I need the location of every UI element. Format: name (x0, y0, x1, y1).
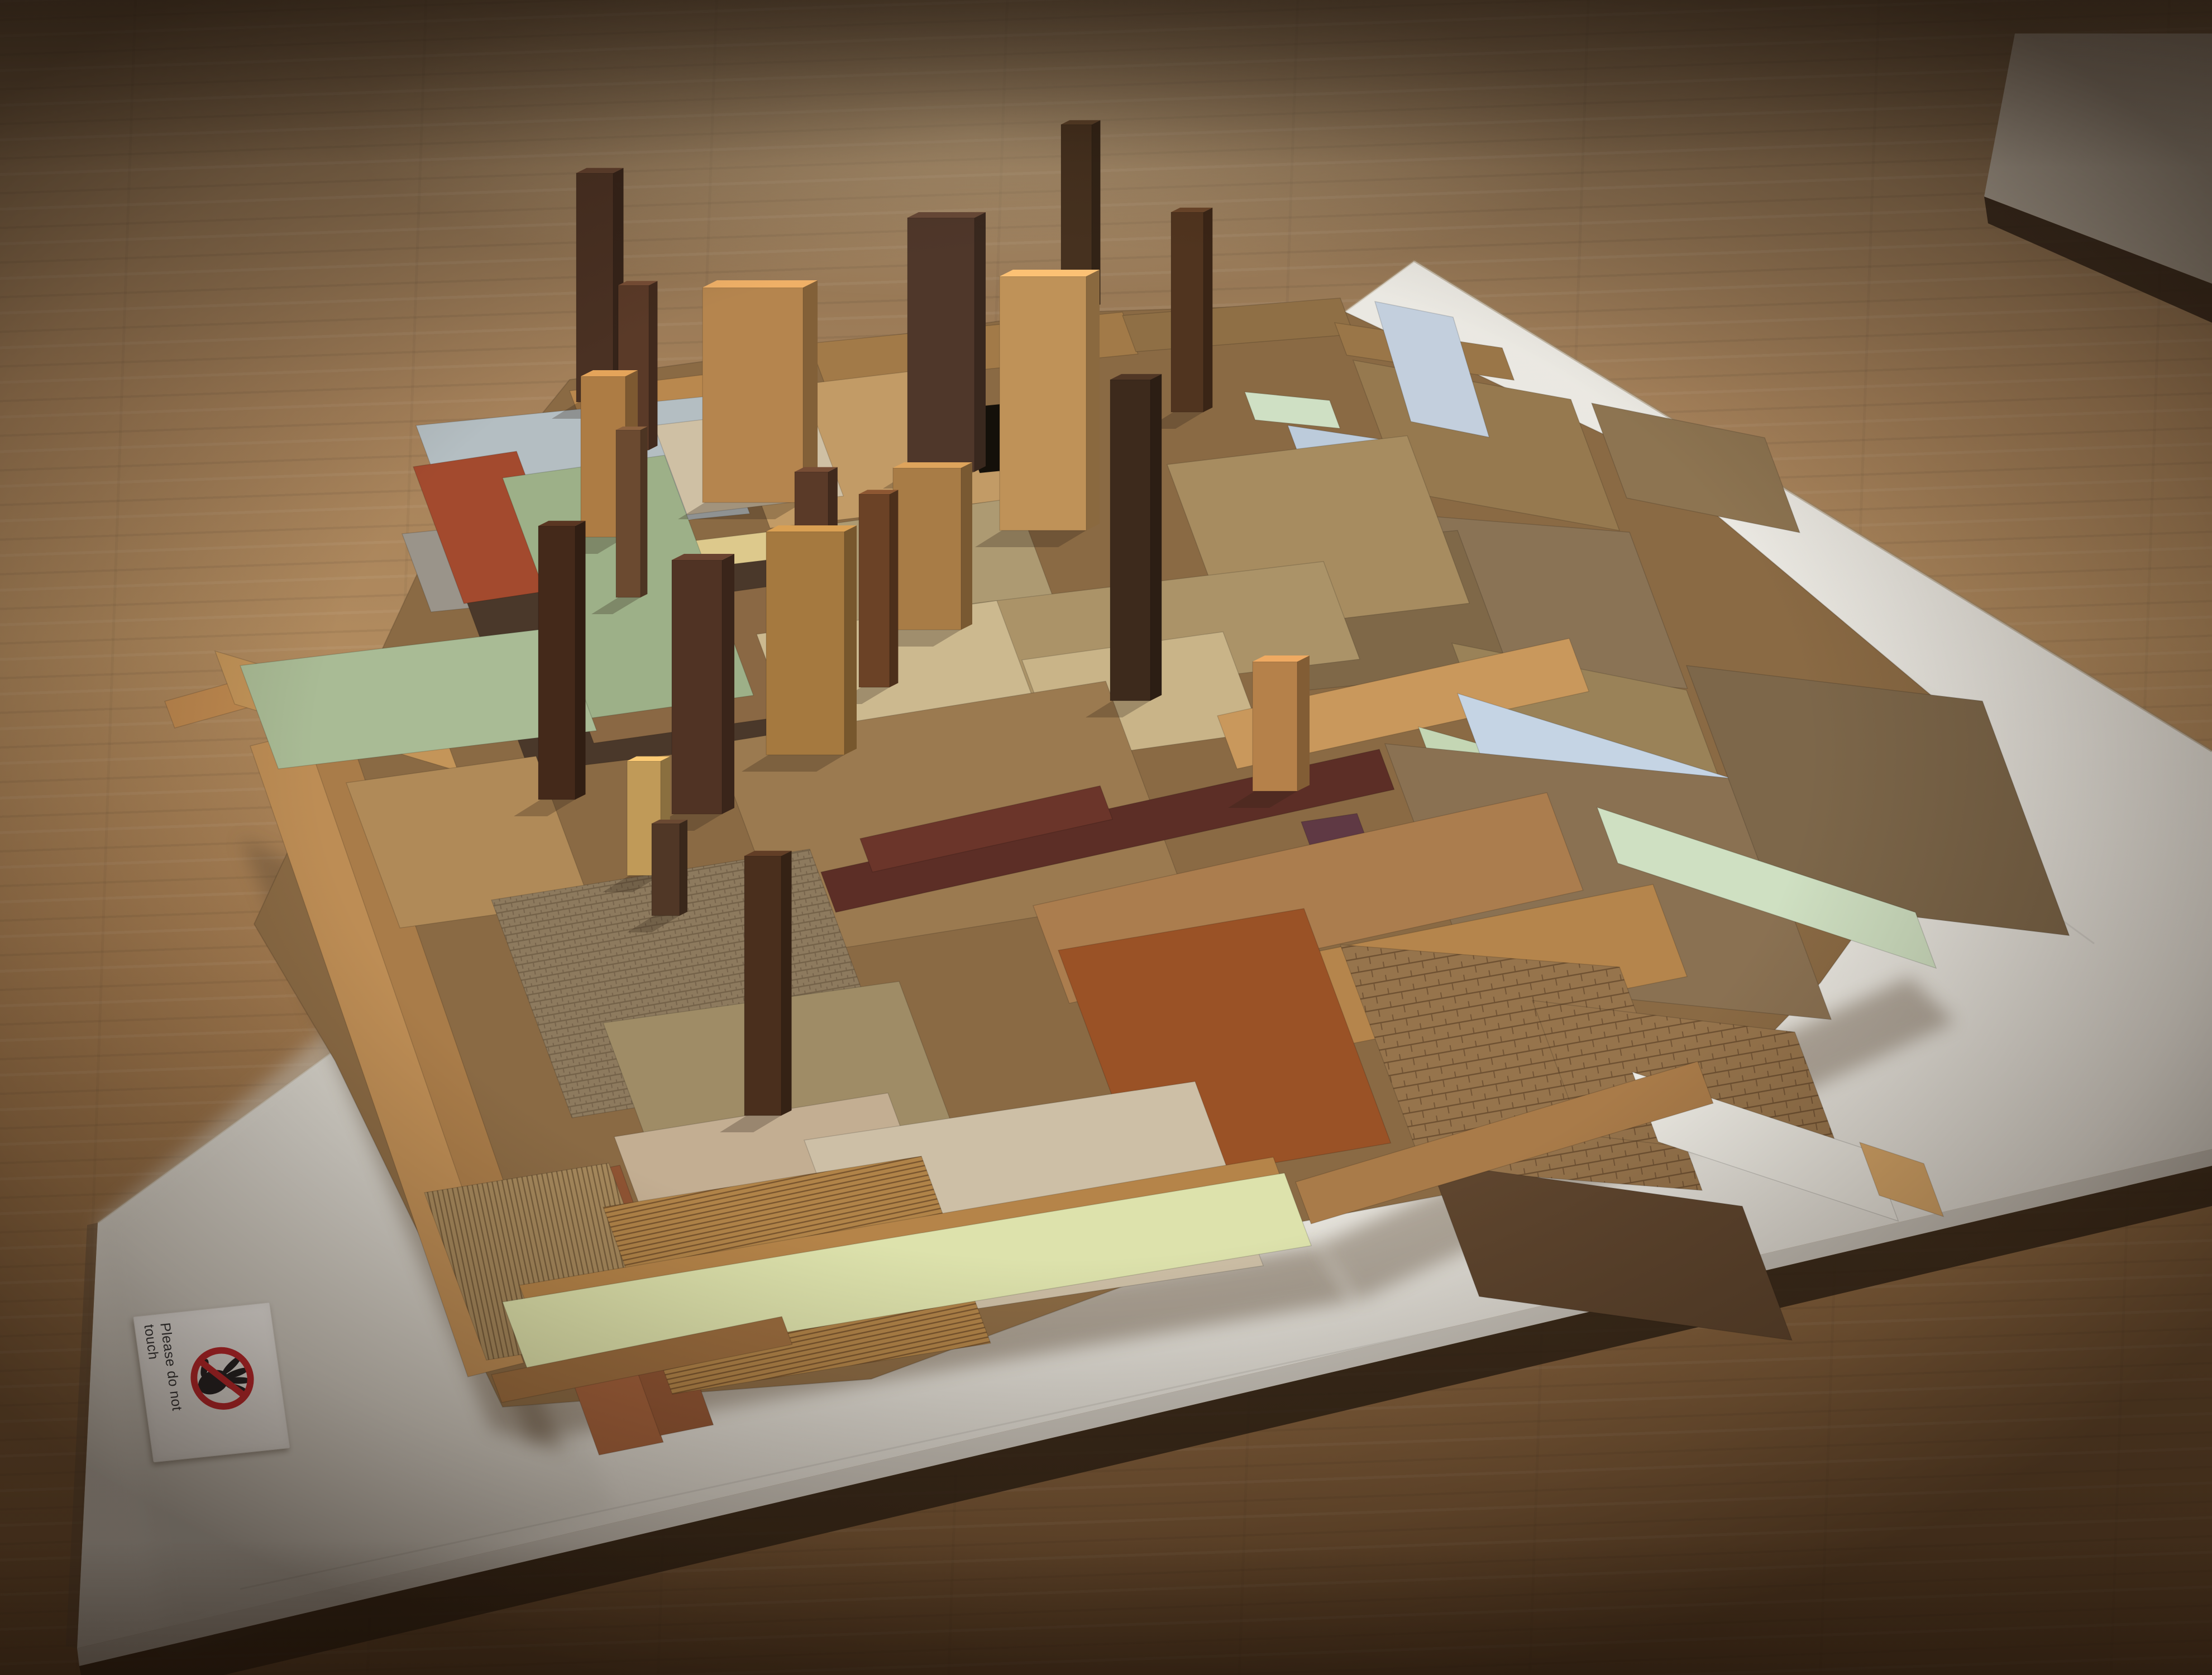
tower-top-face (1000, 270, 1100, 276)
tower-side-face (1150, 374, 1162, 701)
tower-side-face (722, 554, 734, 814)
tower-side-face (844, 525, 857, 755)
tower-top-face (907, 212, 986, 218)
tower-front-face (652, 824, 680, 916)
tower-side-face (1203, 208, 1212, 412)
gallery-installation-photo: Please do not touch (0, 0, 2212, 1675)
tower-front-face (703, 288, 803, 502)
tower-side-face (961, 462, 972, 630)
tower-front-face (1000, 276, 1086, 530)
tower-front-face (1171, 212, 1203, 412)
tower-side-face (641, 427, 647, 597)
do-not-touch-sign: Please do not touch (133, 1302, 290, 1462)
tower-front-face (1110, 380, 1150, 701)
tower-front-face (859, 494, 890, 687)
tower-side-face (680, 820, 687, 916)
tower-top-face (703, 280, 818, 288)
tower-front-face (893, 468, 961, 630)
tower-front-face (538, 526, 575, 800)
tower-front-face (616, 430, 641, 597)
tower-front-face (576, 173, 613, 402)
tower-side-face (890, 490, 898, 687)
artwork-svg (0, 0, 2212, 1675)
tower-top-face (766, 525, 857, 532)
tower-side-face (1297, 655, 1310, 791)
tower-side-face (1086, 270, 1100, 530)
tower-side-face (781, 851, 791, 1116)
no-touching-icon (169, 1327, 276, 1430)
tower-front-face (907, 218, 974, 472)
tower-front-face (766, 532, 844, 755)
tower-side-face (649, 281, 657, 450)
tower-side-face (575, 521, 585, 800)
tower-front-face (744, 856, 781, 1116)
tower-front-face (672, 560, 722, 814)
tower-top-face (893, 462, 972, 468)
tower-front-face (1253, 662, 1297, 791)
tower-side-face (974, 212, 986, 472)
